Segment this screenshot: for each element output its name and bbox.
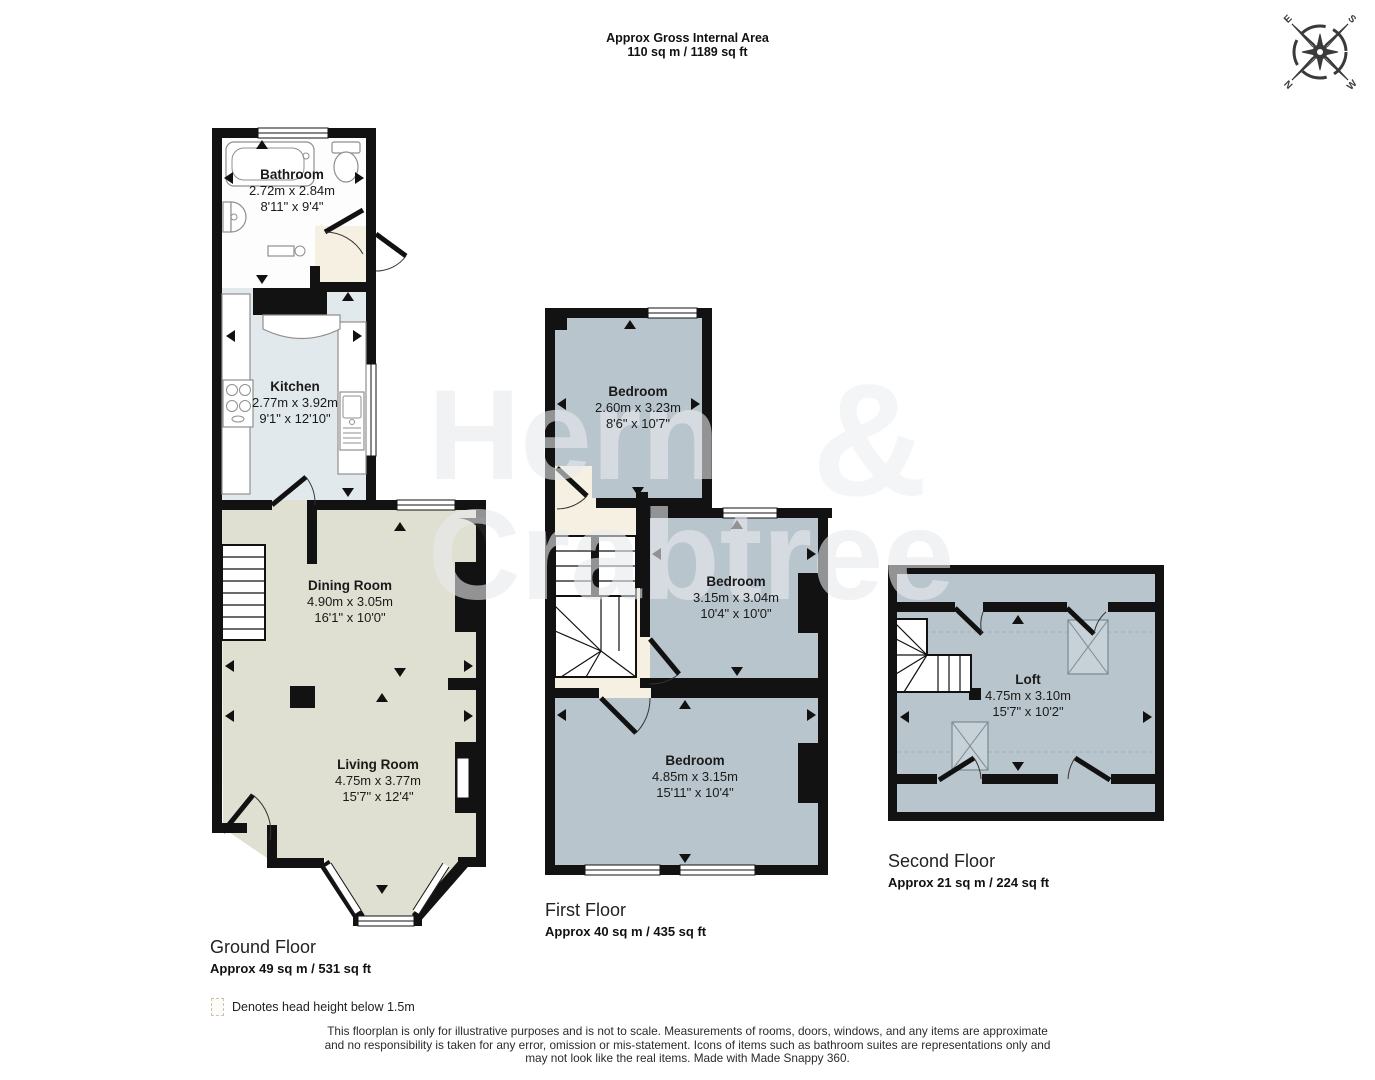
- disclaimer-line3: may not look like the real items. Made w…: [0, 1052, 1375, 1066]
- page-title: Approx Gross Internal Area 110 sq m / 11…: [0, 32, 1375, 59]
- second-floor-area: Approx 21 sq m / 224 sq ft: [888, 875, 1049, 890]
- compass-label-e: E: [1282, 13, 1295, 26]
- kitchen-window: [366, 364, 376, 456]
- compass-rose-icon: E S W N: [1280, 12, 1360, 92]
- head-height-legend-swatch: [211, 998, 224, 1016]
- first-floor-area: Approx 40 sq m / 435 sq ft: [545, 924, 706, 939]
- room-label-bathroom: Bathroom 2.72m x 2.84m 8'11" x 9'4": [249, 167, 335, 214]
- second-floor-title: Second Floor Approx 21 sq m / 224 sq ft: [888, 850, 1049, 890]
- ground-floor-title: Ground Floor Approx 49 sq m / 531 sq ft: [210, 936, 371, 976]
- first-floor-title: First Floor Approx 40 sq m / 435 sq ft: [545, 899, 706, 939]
- disclaimer: This floorplan is only for illustrative …: [0, 1025, 1375, 1066]
- second-floor-label: Second Floor: [888, 850, 1049, 872]
- floorplan-page: Approx Gross Internal Area 110 sq m / 11…: [0, 0, 1375, 1080]
- room-label-dining-room: Dining Room 4.90m x 3.05m 16'1" x 10'0": [307, 578, 393, 625]
- bedroom3-window-right: [680, 865, 755, 875]
- room-label-bedroom-2: Bedroom 3.15m x 3.04m 10'4" x 10'0": [693, 574, 779, 621]
- legend: Denotes head height below 1.5m: [211, 998, 415, 1016]
- living-fireplace: [457, 758, 469, 798]
- kitchen-sink-icon: [340, 392, 364, 450]
- title-line2: 110 sq m / 1189 sq ft: [0, 46, 1375, 60]
- legend-text: Denotes head height below 1.5m: [232, 1000, 415, 1014]
- compass-label-s: S: [1345, 13, 1358, 26]
- hob-icon: [223, 380, 253, 427]
- compass-label-n: N: [1281, 79, 1294, 92]
- ground-floor-stairs: [222, 545, 265, 640]
- bedroom3-window-left: [585, 865, 660, 875]
- ground-floor-plan: [210, 126, 500, 938]
- bay-window-front: [358, 916, 414, 926]
- ground-floor-area: Approx 49 sq m / 531 sq ft: [210, 961, 371, 976]
- room-label-living-room: Living Room 4.75m x 3.77m 15'7" x 12'4": [335, 757, 421, 804]
- entry-door: [376, 234, 406, 271]
- bedroom2-window: [723, 508, 777, 518]
- first-floor-stairs: [555, 536, 636, 677]
- disclaimer-line2: and no responsibility is taken for any e…: [0, 1039, 1375, 1053]
- bedroom1-window: [648, 308, 697, 318]
- bathroom-window: [258, 128, 328, 138]
- first-floor-label: First Floor: [545, 899, 706, 921]
- room-label-kitchen: Kitchen 2.77m x 3.92m 9'1" x 12'10": [252, 379, 338, 426]
- room-label-bedroom-1: Bedroom 2.60m x 3.23m 8'6" x 10'7": [595, 384, 681, 431]
- ground-floor-label: Ground Floor: [210, 936, 371, 958]
- dining-window: [397, 500, 455, 510]
- disclaimer-line1: This floorplan is only for illustrative …: [0, 1025, 1375, 1039]
- room-label-loft: Loft 4.75m x 3.10m 15'7" x 10'2": [985, 672, 1071, 719]
- title-line1: Approx Gross Internal Area: [0, 32, 1375, 46]
- room-label-bedroom-3: Bedroom 4.85m x 3.15m 15'11" x 10'4": [652, 753, 738, 800]
